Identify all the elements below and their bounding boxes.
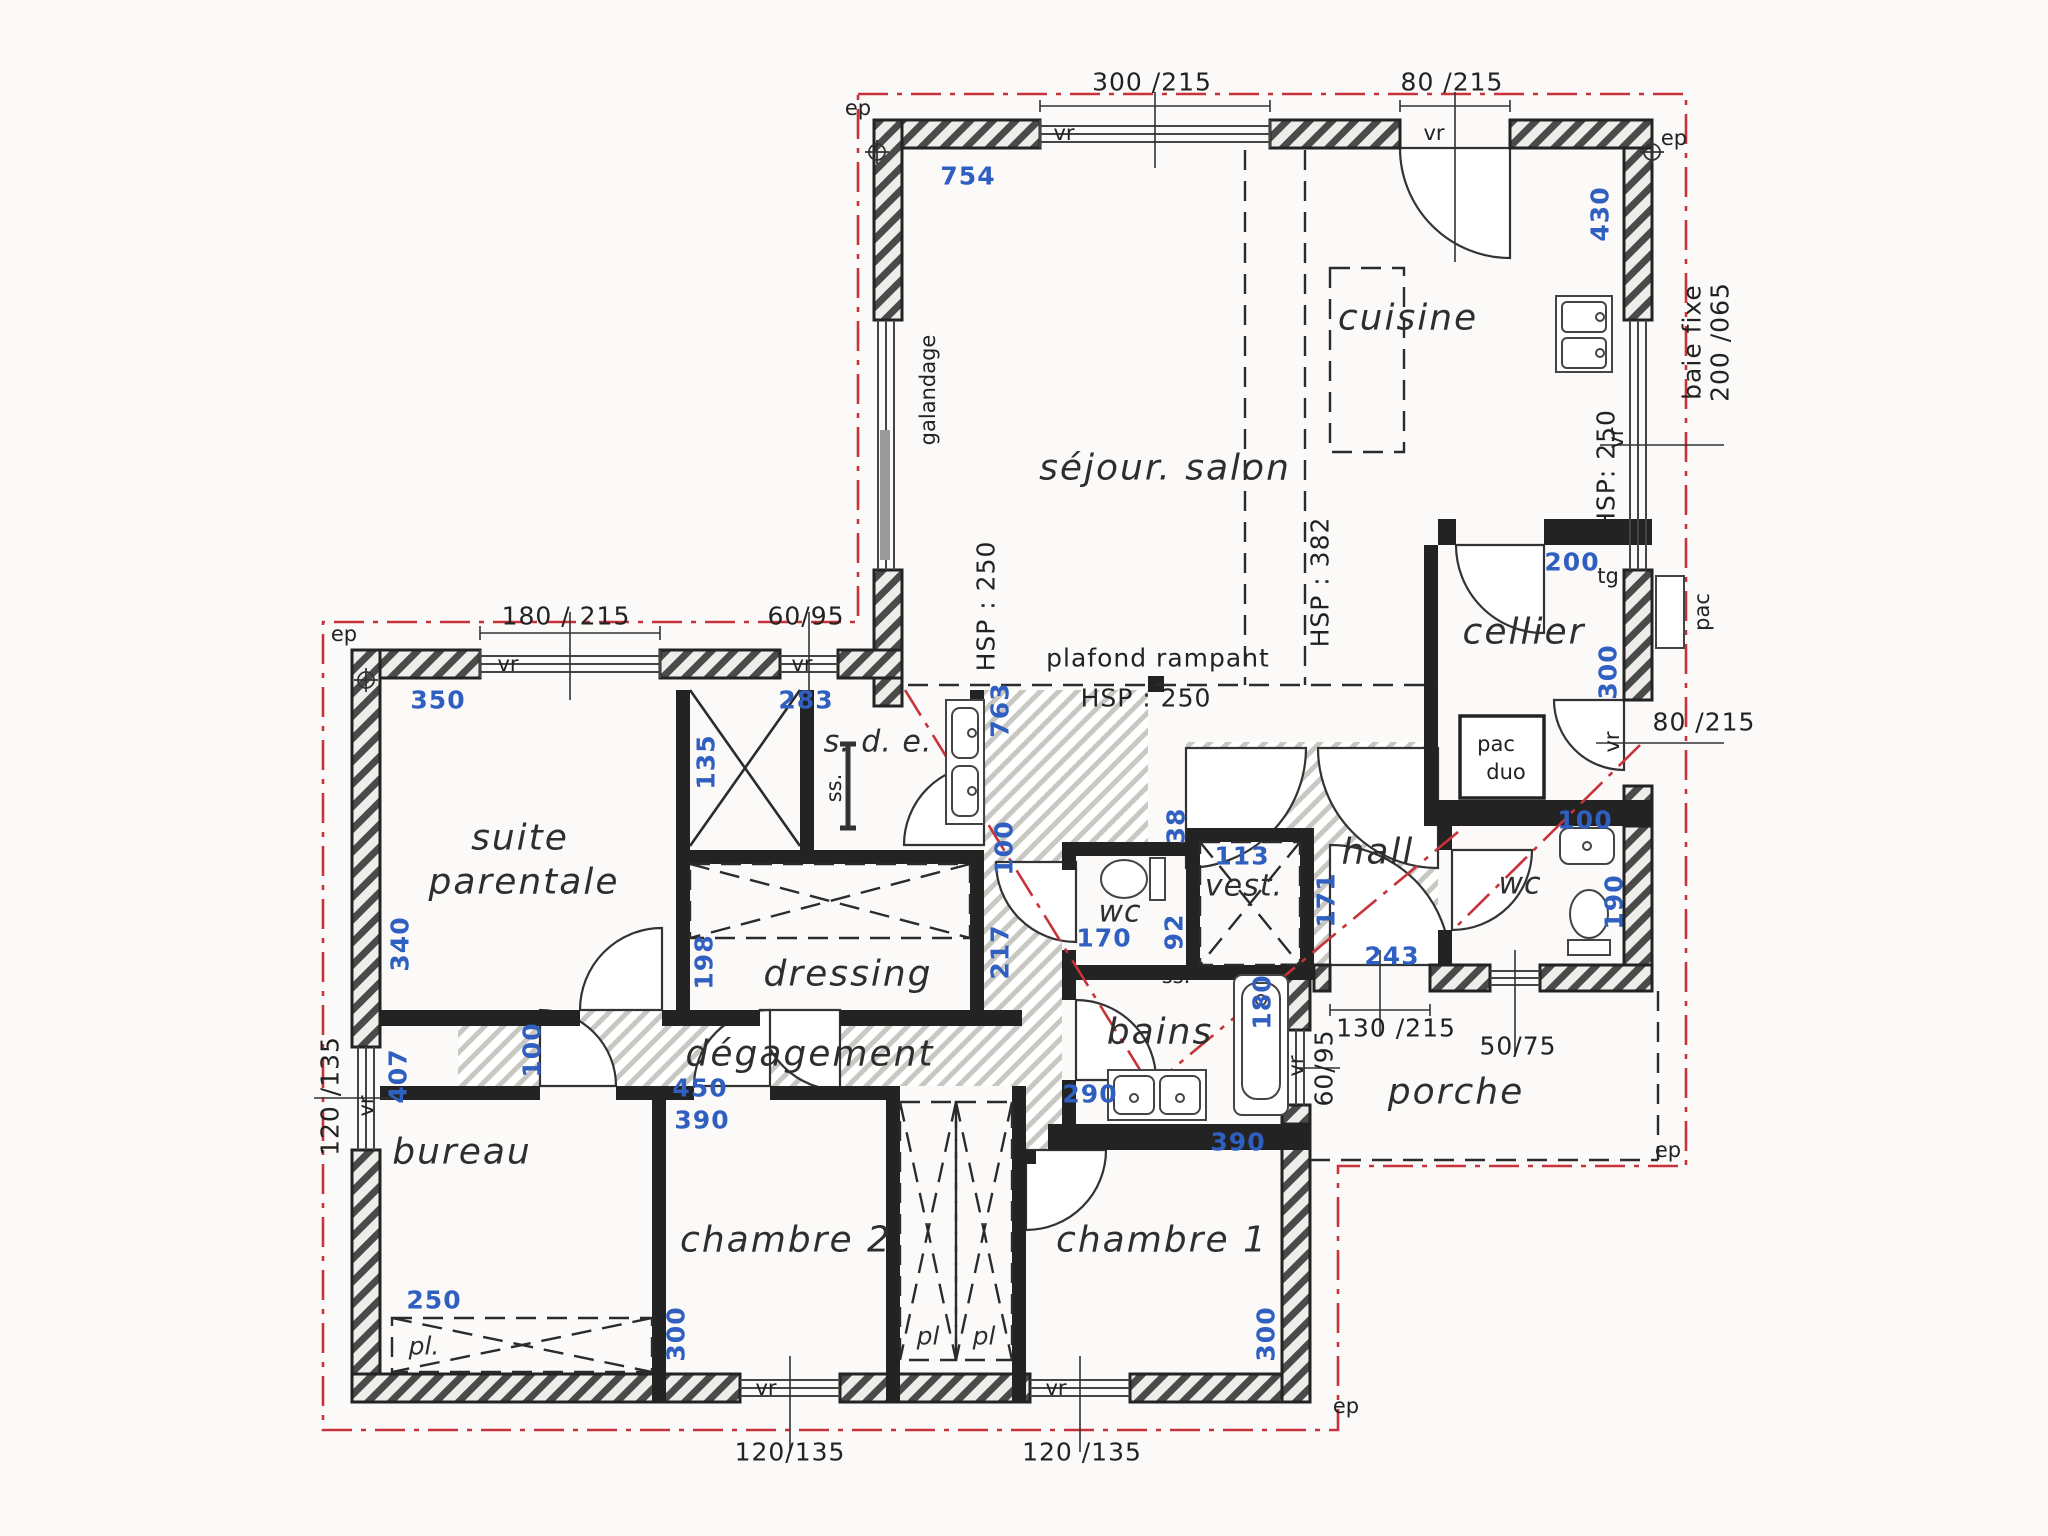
dim-180: 180	[1248, 974, 1277, 1029]
marker-vr-top-window: vr	[1053, 121, 1074, 145]
dim-407: 407	[384, 1048, 413, 1103]
win-dim-80-215-top: 80 /215	[1401, 68, 1504, 97]
dim-300-cellier: 300	[1594, 644, 1623, 699]
note-plafond-hsp: HSP : 250	[1081, 684, 1212, 713]
dim-100-wc-right: 100	[1557, 806, 1612, 835]
dim-217: 217	[986, 924, 1015, 979]
marker-vr-porche-window: vr	[1284, 1055, 1308, 1076]
floor-plan-page: séjour. salon cuisine cellier hall wc wc…	[0, 0, 2048, 1536]
equip-label-pac-duo-2: duo	[1486, 760, 1526, 784]
win-dim-80-215-right: 80 /215	[1653, 708, 1756, 737]
win-dim-120-135-b1: 120/135	[735, 1438, 846, 1467]
win-dim-300-215: 300 /215	[1092, 68, 1212, 97]
marker-vr-cellier-door: vr	[1600, 731, 1624, 752]
room-label-dressing: dressing	[764, 954, 933, 995]
note-hsp-250-left: HSP : 250	[972, 541, 1001, 672]
room-label-porche: porche	[1388, 1072, 1524, 1113]
note-plafond-rampant: plafond rampant	[1046, 644, 1270, 673]
dim-100-sde: 100	[990, 820, 1019, 875]
dim-113: 113	[1214, 842, 1269, 871]
win-dim-baie-fixe: baie fixe	[1678, 284, 1707, 400]
marker-ep-porche: ep	[1655, 1138, 1681, 1162]
note-tg: tg	[1597, 564, 1619, 588]
room-label-chambre2: chambre 2	[680, 1220, 892, 1261]
room-label-degagement: dégagement	[685, 1034, 934, 1075]
dim-450: 450	[672, 1074, 727, 1103]
marker-ep-bottom: ep	[1333, 1394, 1359, 1418]
win-dim-50-75: 50/75	[1479, 1032, 1556, 1061]
dim-283: 283	[778, 686, 833, 715]
equip-label-pac-duo-1: pac	[1477, 732, 1515, 756]
note-ss-sde: ss.	[822, 774, 846, 803]
dim-135: 135	[692, 734, 721, 789]
dim-290: 290	[1062, 1080, 1117, 1109]
note-pac: pac	[1690, 593, 1714, 631]
room-label-sde: s. d. e.	[824, 725, 933, 760]
note-hsp-382: HSP : 382	[1306, 517, 1335, 648]
dim-100-bureau: 100	[518, 1022, 547, 1077]
dim-92: 92	[1160, 914, 1189, 951]
room-label-suite-line1: suite	[471, 818, 569, 859]
dim-340: 340	[386, 916, 415, 971]
marker-ep-top-right: ep	[1661, 126, 1687, 150]
dim-200-cellier: 200	[1544, 548, 1599, 577]
marker-ep-top-left: ep	[845, 96, 871, 120]
win-dim-60-95-porche: 60/95	[1310, 1029, 1339, 1106]
room-label-bureau: bureau	[392, 1132, 532, 1173]
room-label-bains: bains	[1107, 1012, 1214, 1053]
note-galandage: galandage	[916, 335, 940, 446]
win-dim-130-215: 130 /215	[1336, 1014, 1456, 1043]
dim-763: 763	[986, 682, 1015, 737]
closet-label-pl-left: pl	[917, 1322, 940, 1351]
win-dim-120-135-b2: 120 /135	[1022, 1438, 1142, 1467]
marker-vr-top-door: vr	[1423, 121, 1444, 145]
dim-171: 171	[1312, 872, 1341, 927]
room-label-suite-line2: parentale	[428, 862, 619, 903]
dim-390-ch1: 390	[1210, 1128, 1265, 1157]
closet-label-pl-right: pl	[973, 1322, 996, 1351]
note-ss-bains: ss.	[1162, 964, 1191, 988]
room-label-hall: hall	[1342, 832, 1415, 873]
dim-430: 430	[1586, 186, 1615, 241]
dim-300-ch2: 300	[662, 1306, 691, 1361]
marker-vr-suite-window: vr	[497, 652, 518, 676]
room-label-cellier: cellier	[1463, 612, 1586, 653]
win-dim-120-135-left: 120 /135	[316, 1036, 345, 1156]
dim-350: 350	[410, 686, 465, 715]
marker-vr-sde-window: vr	[791, 652, 812, 676]
marker-vr-ch2-window: vr	[755, 1376, 776, 1400]
dim-38: 38	[1162, 808, 1191, 845]
win-dim-60-95: 60/95	[767, 602, 844, 631]
dim-198: 198	[690, 934, 719, 989]
marker-vr-ch1-window: vr	[1045, 1376, 1066, 1400]
room-label-wc-right: wc	[1498, 867, 1541, 902]
dim-300-ch1: 300	[1252, 1306, 1281, 1361]
dim-754: 754	[940, 162, 995, 191]
win-dim-baie-200-065: 200 /065	[1706, 282, 1735, 402]
room-label-sejour: séjour. salon	[1039, 448, 1291, 489]
dim-243: 243	[1364, 942, 1419, 971]
closet-label-pl-bureau: pl.	[409, 1332, 440, 1361]
marker-vr-bureau-window: vr	[354, 1095, 378, 1116]
dim-170: 170	[1076, 924, 1131, 953]
dim-250: 250	[406, 1286, 461, 1315]
marker-ep-left: ep	[331, 622, 357, 646]
room-label-cuisine: cuisine	[1338, 298, 1478, 339]
dim-190: 190	[1600, 874, 1629, 929]
win-dim-180-215: 180 / 215	[502, 602, 631, 631]
room-label-chambre1: chambre 1	[1056, 1220, 1268, 1261]
dim-390-ch2: 390	[674, 1106, 729, 1135]
floor-plan-drawing	[0, 0, 2048, 1536]
room-label-vest: vest.	[1205, 869, 1283, 904]
marker-vr-baie: vr	[1604, 427, 1628, 448]
